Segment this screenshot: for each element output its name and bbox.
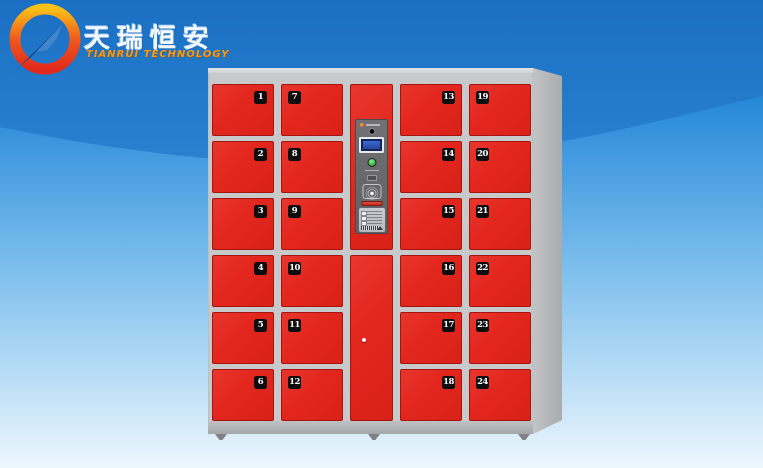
control-panel-mount — [350, 84, 393, 250]
product-image: 天瑞恒安 TIANRUI TECHNOLOGY 123456 789101112 — [0, 0, 763, 468]
center-tall-door — [350, 255, 393, 421]
locker-column-1: 123456 — [212, 84, 274, 421]
door-number-badge: 19 — [476, 91, 489, 104]
door-number-badge: 2 — [254, 148, 267, 161]
locker-column-4: 192021222324 — [469, 84, 531, 421]
door-number-badge: 21 — [476, 205, 489, 218]
door-number-badge: 13 — [442, 91, 455, 104]
led-label — [365, 170, 379, 173]
door-number-badge: 16 — [442, 262, 455, 275]
door-number-badge: 15 — [442, 205, 455, 218]
rfid-reader-icon — [362, 184, 381, 199]
door-number-badge: 14 — [442, 148, 455, 161]
door-number-badge: 8 — [288, 148, 301, 161]
brand-ring-arrow-icon — [4, 0, 89, 78]
door-number-badge: 4 — [254, 262, 267, 275]
brand-logo: 天瑞恒安 TIANRUI TECHNOLOGY — [2, 0, 232, 80]
locker-center-column — [350, 84, 393, 421]
cabinet-front: 123456 789101112 — [208, 68, 533, 434]
locker-door: 4 — [212, 255, 274, 307]
locker-door: 13 — [400, 84, 462, 136]
locker-column-2: 789101112 — [281, 84, 343, 421]
locker-door: 17 — [400, 312, 462, 364]
locker-door: 7 — [281, 84, 343, 136]
locker-door: 10 — [281, 255, 343, 307]
panel-brand-icon — [360, 123, 384, 127]
barcode-scanner-window — [367, 175, 377, 181]
locker-door: 8 — [281, 141, 343, 193]
lock-icon — [362, 338, 366, 342]
cabinet-foot — [518, 434, 530, 440]
brand-english-name: TIANRUI TECHNOLOGY — [86, 49, 229, 60]
door-number-badge: 6 — [254, 376, 267, 389]
locker-door: 3 — [212, 198, 274, 250]
cabinet-base — [208, 421, 533, 434]
door-number-badge: 22 — [476, 262, 489, 275]
door-number-badge: 9 — [288, 205, 301, 218]
lcd-screen — [359, 137, 384, 153]
cabinet-foot — [368, 434, 380, 440]
locker-door: 9 — [281, 198, 343, 250]
locker-door: 15 — [400, 198, 462, 250]
locker-door: 11 — [281, 312, 343, 364]
cabinet-side-panel — [533, 68, 562, 434]
door-number-badge: 20 — [476, 148, 489, 161]
door-number-badge: 17 — [442, 319, 455, 332]
locker-door: 23 — [469, 312, 531, 364]
locker-door: 1 — [212, 84, 274, 136]
locker-door: 5 — [212, 312, 274, 364]
door-number-badge: 3 — [254, 205, 267, 218]
control-panel — [355, 119, 388, 234]
door-number-badge: 18 — [442, 376, 455, 389]
locker-door: 2 — [212, 141, 274, 193]
door-number-badge: 7 — [288, 91, 301, 104]
camera-icon — [368, 128, 375, 135]
locker-cabinet: 123456 789101112 — [208, 68, 562, 440]
locker-door: 22 — [469, 255, 531, 307]
door-number-badge: 23 — [476, 319, 489, 332]
locker-door: 20 — [469, 141, 531, 193]
cabinet-foot — [215, 434, 227, 440]
door-number-badge: 12 — [288, 376, 301, 389]
door-number-badge: 24 — [476, 376, 489, 389]
locker-column-3: 131415161718 — [400, 84, 462, 421]
locker-door: 6 — [212, 369, 274, 421]
door-number-badge: 10 — [288, 262, 301, 275]
locker-door: 16 — [400, 255, 462, 307]
door-number-badge: 5 — [254, 319, 267, 332]
locker-door: 24 — [469, 369, 531, 421]
locker-door: 12 — [281, 369, 343, 421]
ticket-slot — [361, 201, 382, 206]
door-number-badge: 1 — [254, 91, 267, 104]
locker-door: 14 — [400, 141, 462, 193]
green-led-indicator — [367, 158, 376, 167]
locker-door: 18 — [400, 369, 462, 421]
locker-door: 19 — [469, 84, 531, 136]
door-number-badge: 11 — [288, 319, 301, 332]
instruction-sticker — [359, 208, 385, 232]
locker-door: 21 — [469, 198, 531, 250]
